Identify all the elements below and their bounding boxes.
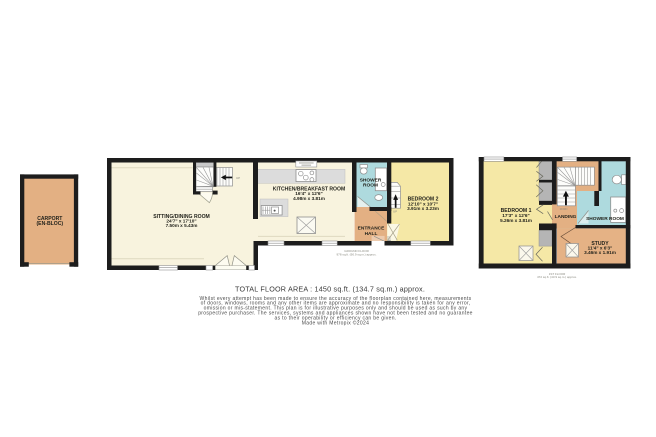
svg-text:7.50m x 5.43m: 7.50m x 5.43m <box>166 223 198 228</box>
svg-text:5.26m x 3.81m: 5.26m x 3.81m <box>500 218 532 223</box>
svg-text:4.98m x 3.81m: 4.98m x 3.81m <box>293 196 325 201</box>
svg-text:Made with Metropix ©2024: Made with Metropix ©2024 <box>302 319 369 326</box>
svg-text:LANDING: LANDING <box>555 214 577 220</box>
svg-text:UP: UP <box>236 176 240 180</box>
svg-text:SHOWER: SHOWER <box>360 178 382 184</box>
svg-text:ROOM: ROOM <box>363 183 378 189</box>
svg-text:ENTRANCE: ENTRANCE <box>358 226 385 232</box>
svg-text:UP: UP <box>393 209 397 213</box>
svg-text:HALL: HALL <box>365 231 378 237</box>
svg-text:472 sq.ft. (43.9 sq.m.) approx: 472 sq.ft. (43.9 sq.m.) approx. <box>537 275 577 279</box>
svg-text:TOTAL FLOOR AREA : 1450 sq.ft.: TOTAL FLOOR AREA : 1450 sq.ft. (134.7 sq… <box>235 285 425 294</box>
svg-text:978 sq.ft. (90.9 sq.m.) approx: 978 sq.ft. (90.9 sq.m.) approx. <box>336 252 376 256</box>
svg-text:3.46m x 1.91m: 3.46m x 1.91m <box>584 250 616 255</box>
svg-text:DOWN: DOWN <box>560 208 568 211</box>
svg-text:(EN-BLOC): (EN-BLOC) <box>36 221 63 227</box>
svg-text:SHOWER ROOM: SHOWER ROOM <box>586 216 624 222</box>
svg-text:3.91m x 3.23m: 3.91m x 3.23m <box>407 206 439 211</box>
